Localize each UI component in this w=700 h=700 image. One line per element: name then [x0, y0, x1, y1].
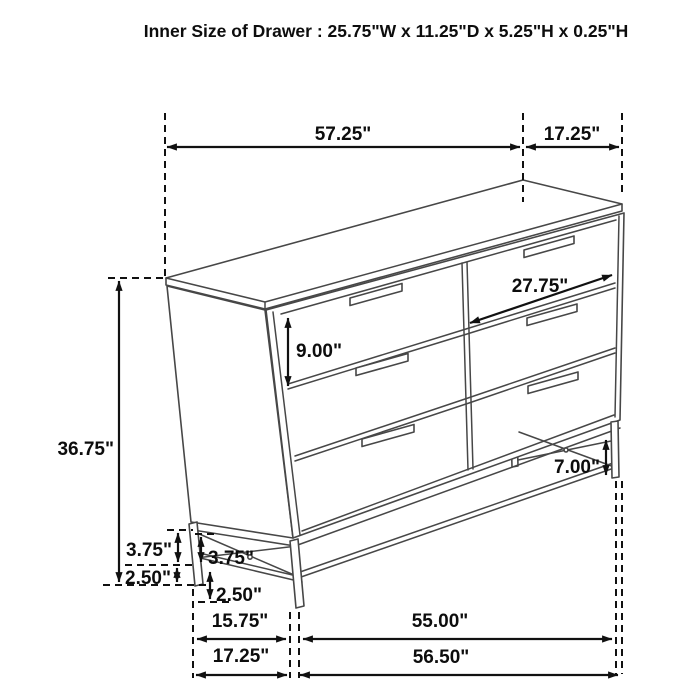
dim-label-base-depth-outer: 17.25"	[213, 646, 270, 667]
dresser-dimension-diagram: Inner Size of Drawer : 25.75"W x 11.25"D…	[0, 0, 700, 700]
dim-foot-outer: 2.50"	[125, 568, 177, 589]
dim-label-overall-height: 36.75"	[57, 439, 114, 460]
dim-label-drawer-width: 27.75"	[512, 276, 569, 297]
dim-label-drawer-height: 9.00"	[296, 341, 342, 362]
dim-label-top-width: 57.25"	[315, 124, 372, 145]
brace-screw	[564, 448, 568, 452]
dim-label-base-rail-outer: 3.75"	[126, 540, 172, 561]
dim-label-foot-outer: 2.50"	[125, 568, 171, 589]
dim-label-top-depth: 17.25"	[544, 124, 601, 145]
dim-label-base-width-outer: 56.50"	[413, 647, 470, 668]
leg-front-right	[611, 421, 619, 478]
dim-label-foot-inner: 2.50"	[216, 585, 262, 606]
dim-label-base-rail-inner: 3.75"	[208, 548, 254, 569]
figure-title: Inner Size of Drawer : 25.75"W x 11.25"D…	[144, 21, 629, 41]
dim-label-base-clearance: 7.00"	[554, 457, 600, 478]
dim-label-base-depth-inner: 15.75"	[212, 611, 269, 632]
dim-label-base-width-front: 55.00"	[412, 611, 469, 632]
